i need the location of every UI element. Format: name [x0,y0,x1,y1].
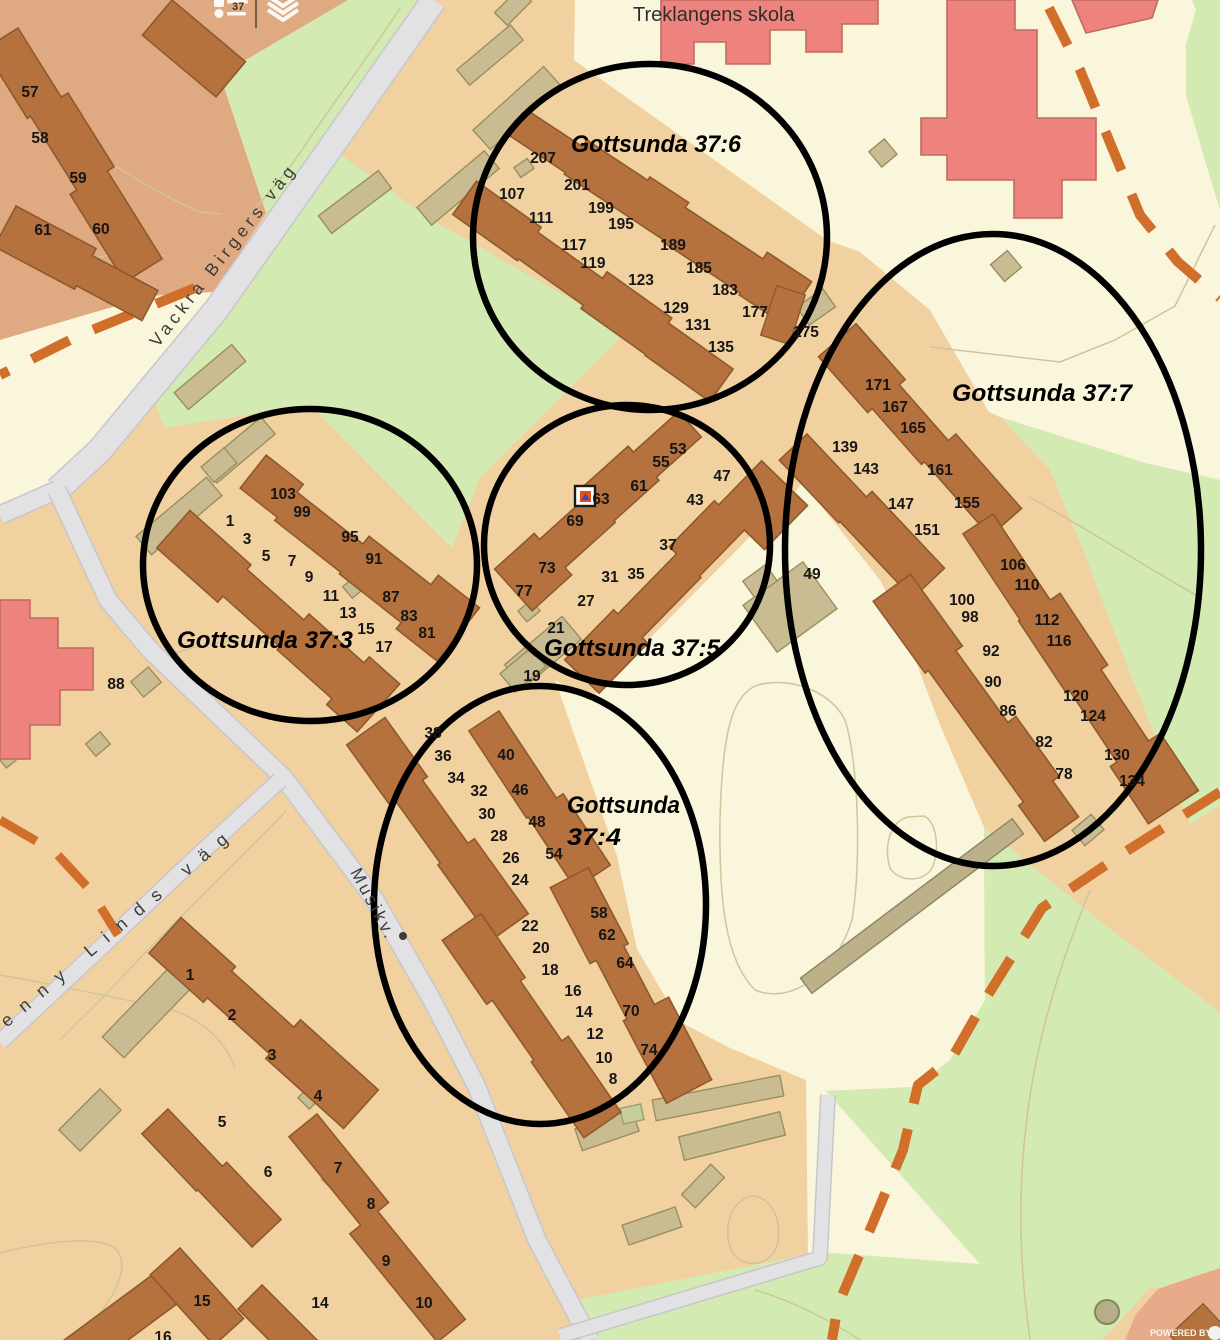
svg-text:58: 58 [31,130,49,147]
svg-text:9: 9 [382,1253,391,1270]
svg-text:135: 135 [708,339,734,356]
svg-text:78: 78 [1055,766,1073,783]
svg-text:POWERED BY: POWERED BY [1150,1328,1212,1338]
svg-text:151: 151 [914,522,940,539]
svg-text:116: 116 [1046,633,1071,650]
svg-text:201: 201 [564,177,590,194]
svg-text:177: 177 [742,304,768,321]
svg-text:63: 63 [592,491,610,508]
svg-text:1: 1 [226,513,235,530]
svg-text:189: 189 [660,237,686,254]
svg-text:3: 3 [243,531,252,548]
svg-text:90: 90 [984,674,1001,691]
svg-text:103: 103 [270,486,296,503]
svg-text:195: 195 [608,216,634,233]
svg-text:70: 70 [622,1003,639,1020]
svg-text:14: 14 [311,1295,329,1312]
svg-text:Gottsunda 37:3: Gottsunda 37:3 [177,627,354,654]
svg-text:100: 100 [949,592,975,609]
svg-text:139: 139 [832,439,858,456]
svg-text:60: 60 [92,221,109,238]
svg-text:74: 74 [640,1042,658,1059]
svg-text:8: 8 [609,1071,618,1088]
svg-text:9: 9 [305,569,314,586]
svg-text:7: 7 [334,1160,343,1177]
svg-text:117: 117 [561,237,586,254]
svg-text:28: 28 [490,828,508,845]
svg-text:183: 183 [712,282,738,299]
svg-text:155: 155 [954,495,980,512]
svg-text:171: 171 [865,377,891,394]
svg-text:26: 26 [502,850,520,867]
svg-text:37: 37 [232,1,244,13]
svg-text:6: 6 [264,1164,273,1181]
svg-text:62: 62 [598,927,615,944]
svg-text:95: 95 [341,529,359,546]
svg-text:32: 32 [470,783,487,800]
svg-text:3: 3 [268,1047,277,1064]
svg-text:91: 91 [365,551,383,568]
svg-text:49: 49 [803,566,821,583]
svg-text:120: 120 [1063,688,1089,705]
svg-text:12: 12 [586,1026,603,1043]
svg-text:86: 86 [999,703,1017,720]
svg-text:34: 34 [447,770,465,787]
svg-text:10: 10 [595,1050,612,1067]
svg-text:98: 98 [961,609,979,626]
svg-text:Gottsunda 37:6: Gottsunda 37:6 [571,131,742,158]
svg-text:5: 5 [218,1114,227,1131]
svg-text:61: 61 [630,478,648,495]
svg-text:14: 14 [575,1004,593,1021]
svg-text:64: 64 [616,955,634,972]
svg-text:110: 110 [1014,577,1039,594]
svg-text:88: 88 [107,676,125,693]
svg-text:20: 20 [532,940,549,957]
svg-text:36: 36 [434,748,452,765]
svg-text:207: 207 [530,150,556,167]
svg-text:38: 38 [424,725,442,742]
svg-text:167: 167 [882,399,908,416]
svg-text:130: 130 [1104,747,1130,764]
svg-text:43: 43 [686,492,704,509]
svg-text:185: 185 [686,260,712,277]
svg-text:16: 16 [564,983,582,1000]
svg-text:147: 147 [888,496,914,513]
svg-text:37: 37 [659,537,676,554]
svg-text:92: 92 [982,643,999,660]
svg-text:69: 69 [566,513,584,530]
svg-text:37:4: 37:4 [567,824,621,851]
svg-text:11: 11 [323,588,340,605]
svg-text:59: 59 [69,170,87,187]
svg-text:123: 123 [628,272,654,289]
svg-text:47: 47 [713,468,730,485]
svg-text:143: 143 [853,461,879,478]
svg-text:77: 77 [515,583,532,600]
svg-text:16: 16 [154,1329,172,1340]
svg-text:73: 73 [538,560,556,577]
svg-text:82: 82 [1035,734,1052,751]
svg-text:8: 8 [367,1196,376,1213]
svg-text:48: 48 [528,814,546,831]
svg-text:61: 61 [34,222,52,239]
svg-text:119: 119 [580,255,605,272]
svg-text:99: 99 [293,504,311,521]
svg-text:87: 87 [382,589,399,606]
svg-text:58: 58 [590,905,608,922]
svg-text:111: 111 [529,210,554,227]
svg-text:57: 57 [21,84,38,101]
svg-text:81: 81 [418,625,436,642]
svg-text:21: 21 [547,620,565,637]
svg-text:Gottsunda 37:7: Gottsunda 37:7 [952,380,1134,407]
svg-text:19: 19 [523,668,541,685]
svg-text:13: 13 [339,605,357,622]
svg-text:35: 35 [627,566,645,583]
svg-text:15: 15 [193,1293,211,1310]
svg-text:Gottsunda 37:5: Gottsunda 37:5 [544,635,721,662]
svg-text:124: 124 [1080,708,1106,725]
svg-text:131: 131 [685,317,711,334]
svg-text:24: 24 [511,872,529,889]
svg-text:30: 30 [478,806,495,823]
svg-text:165: 165 [900,420,926,437]
svg-text:10: 10 [415,1295,432,1312]
svg-text:7: 7 [288,553,297,570]
svg-text:22: 22 [521,918,538,935]
svg-text:Gottsunda: Gottsunda [567,792,680,819]
svg-text:129: 129 [663,300,689,317]
svg-text:4: 4 [314,1088,323,1105]
svg-text:53: 53 [669,441,687,458]
svg-text:2: 2 [228,1007,237,1024]
svg-text:83: 83 [400,608,418,625]
svg-text:15: 15 [357,621,375,638]
svg-text:18: 18 [541,962,559,979]
svg-text:54: 54 [545,846,563,863]
svg-text:106: 106 [1000,557,1026,574]
svg-text:31: 31 [601,569,619,586]
svg-text:161: 161 [927,462,953,479]
svg-text:199: 199 [588,200,614,217]
svg-text:40: 40 [497,747,514,764]
svg-text:55: 55 [652,454,670,471]
svg-text:107: 107 [499,186,525,203]
svg-text:46: 46 [511,782,529,799]
svg-text:5: 5 [262,548,271,565]
svg-text:134: 134 [1119,773,1145,790]
svg-text:1: 1 [186,967,195,984]
svg-text:175: 175 [793,324,819,341]
svg-text:112: 112 [1034,612,1059,629]
svg-text:27: 27 [577,593,594,610]
svg-text:Treklangens skola: Treklangens skola [633,4,795,26]
svg-text:17: 17 [375,639,392,656]
